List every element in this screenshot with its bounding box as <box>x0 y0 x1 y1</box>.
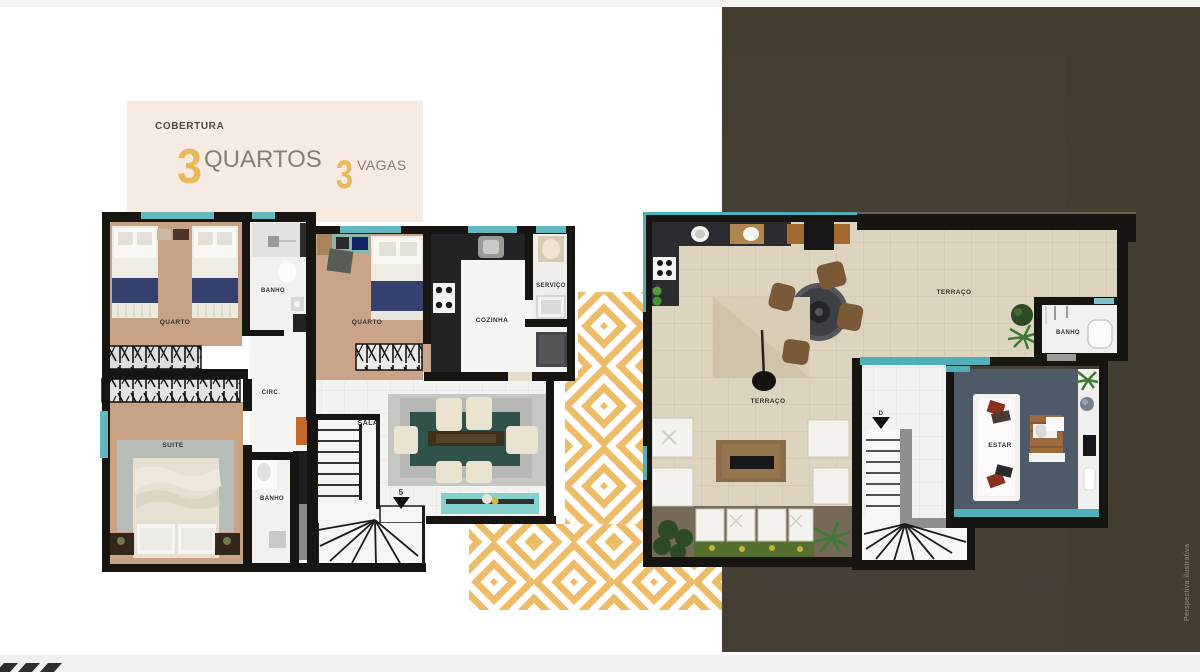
svg-text:QUARTO: QUARTO <box>160 319 190 326</box>
svg-text:TERRAÇO: TERRAÇO <box>937 289 972 296</box>
svg-text:CIRC.: CIRC. <box>262 390 280 396</box>
svg-text:VAGAS: VAGAS <box>357 157 407 173</box>
svg-text:Perspectiva ilustrativa: Perspectiva ilustrativa <box>1184 544 1191 621</box>
svg-text:ESTAR: ESTAR <box>988 442 1012 449</box>
svg-text:TERRAÇO: TERRAÇO <box>751 398 786 405</box>
svg-text:BANHO: BANHO <box>260 496 284 502</box>
svg-text:COBERTURA: COBERTURA <box>155 121 224 132</box>
svg-text:3: 3 <box>177 140 202 194</box>
svg-text:COZINHA: COZINHA <box>476 317 508 324</box>
svg-text:QUARTO: QUARTO <box>352 319 382 326</box>
svg-text:QUARTOS: QUARTOS <box>204 146 322 173</box>
svg-text:BANHO: BANHO <box>261 288 285 294</box>
svg-text:SERVIÇO: SERVIÇO <box>536 283 566 289</box>
svg-text:BANHO: BANHO <box>1056 330 1080 336</box>
svg-text:3: 3 <box>336 153 353 197</box>
svg-text:SUITE: SUITE <box>162 442 183 449</box>
svg-text:SALA: SALA <box>358 420 379 427</box>
svg-text:D: D <box>879 411 884 417</box>
svg-text:5: 5 <box>399 488 404 497</box>
